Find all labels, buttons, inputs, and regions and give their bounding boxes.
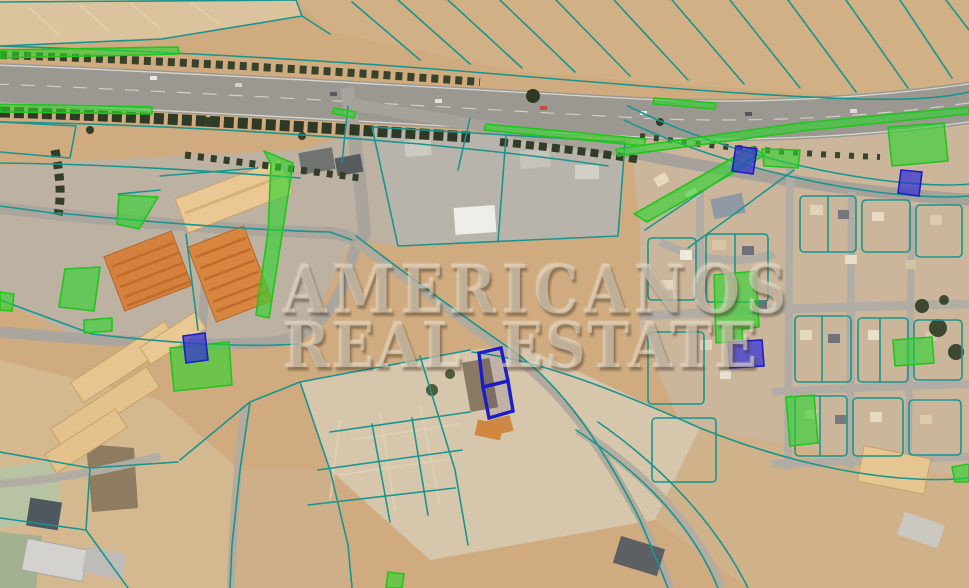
building [575, 165, 599, 179]
building [800, 330, 812, 340]
highlighted-parcel-blue[interactable] [732, 146, 757, 174]
building [519, 149, 550, 170]
building [660, 280, 673, 290]
selected-parcel-outline[interactable] [483, 381, 513, 418]
tree-row [939, 295, 949, 305]
tree-row [203, 117, 213, 127]
tree-row [915, 299, 929, 313]
vehicle [330, 92, 337, 96]
highlighted-parcel-blue[interactable] [728, 340, 764, 368]
highlighted-parcel-green[interactable] [888, 123, 948, 166]
building [905, 260, 916, 269]
tree-row [929, 319, 947, 337]
highlighted-parcel-green[interactable] [386, 572, 404, 588]
vehicle [435, 99, 442, 103]
tree-row [526, 89, 540, 103]
building [810, 205, 823, 215]
vehicle [150, 76, 157, 80]
vehicle [745, 112, 752, 116]
building [930, 215, 942, 225]
building [870, 412, 882, 422]
building [700, 340, 712, 350]
building [680, 250, 692, 260]
highlighted-parcel-blue[interactable] [898, 170, 922, 196]
building [742, 246, 754, 255]
map-canvas [0, 0, 969, 588]
highlighted-parcel-green[interactable] [84, 318, 112, 333]
building [720, 370, 731, 379]
vehicle [235, 83, 242, 87]
building [868, 330, 881, 340]
tree-row [445, 369, 455, 379]
building [835, 415, 846, 424]
highlighted-parcel-green[interactable] [762, 149, 800, 168]
highlighted-parcel-green[interactable] [59, 267, 100, 311]
satellite-map[interactable]: AMERICANOS REAL ESTATE [0, 0, 969, 588]
highlighted-parcel-blue[interactable] [183, 333, 208, 363]
building [828, 334, 840, 343]
building [838, 210, 849, 219]
vehicle [540, 106, 547, 110]
building [453, 205, 497, 236]
building [712, 240, 726, 250]
building [404, 139, 431, 157]
highlighted-parcel-green[interactable] [786, 395, 818, 446]
field-patch [86, 444, 138, 512]
highlighted-parcel-green[interactable] [893, 337, 934, 366]
vehicle [850, 109, 857, 113]
building [920, 415, 932, 424]
highlighted-parcel-green[interactable] [0, 292, 14, 311]
highlighted-parcel-green[interactable] [952, 464, 969, 482]
building [872, 212, 884, 221]
tree-row [298, 132, 306, 140]
building [845, 255, 857, 264]
tree-row [86, 126, 94, 134]
